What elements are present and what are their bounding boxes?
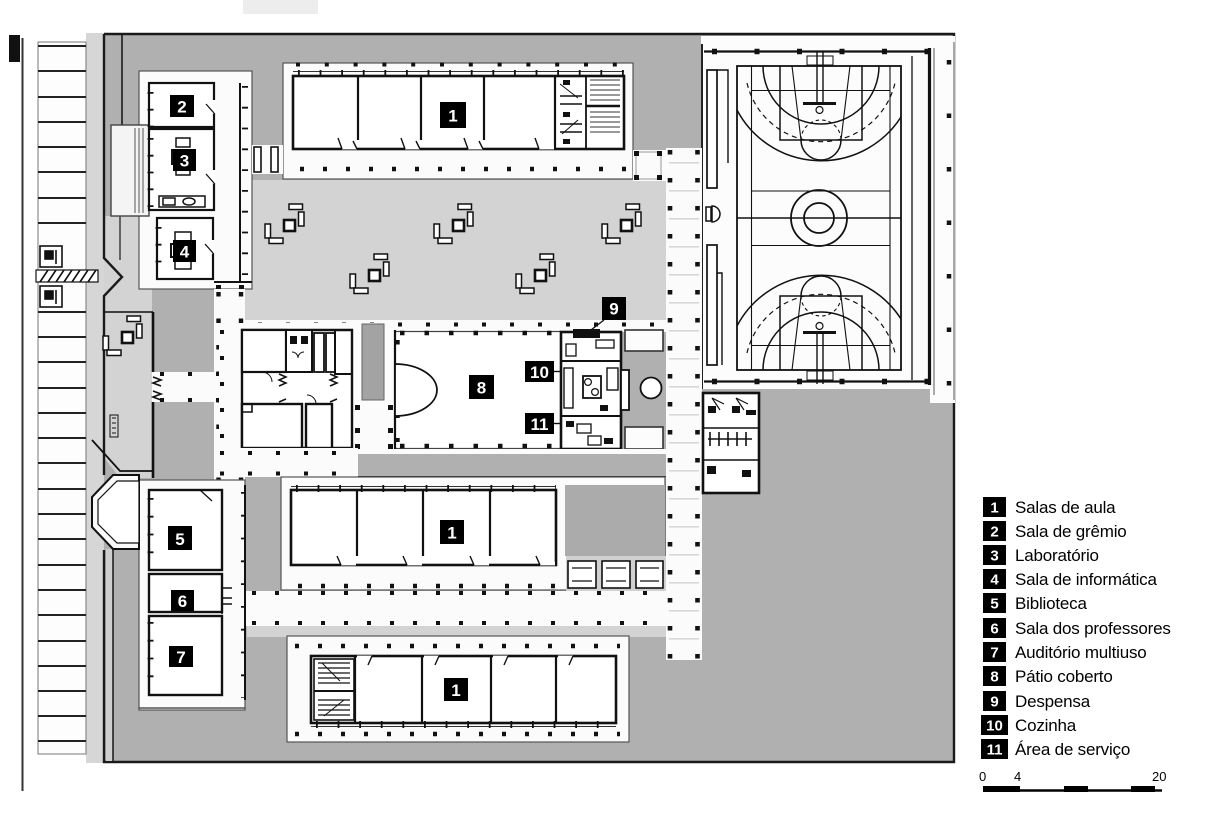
svg-text:4: 4: [180, 243, 190, 262]
svg-text:10: 10: [986, 718, 1003, 735]
svg-text:3: 3: [990, 548, 998, 565]
svg-text:1: 1: [448, 107, 457, 126]
svg-text:7: 7: [990, 645, 998, 662]
svg-text:Sala de informática: Sala de informática: [1015, 570, 1157, 589]
svg-text:3: 3: [180, 152, 189, 171]
svg-text:9: 9: [609, 300, 618, 319]
svg-text:6: 6: [990, 621, 998, 638]
svg-text:5: 5: [175, 530, 184, 549]
svg-text:2: 2: [177, 98, 186, 117]
svg-text:10: 10: [530, 363, 549, 382]
svg-text:20: 20: [1152, 769, 1166, 784]
svg-text:Biblioteca: Biblioteca: [1015, 594, 1087, 613]
svg-text:Sala de grêmio: Sala de grêmio: [1015, 522, 1127, 541]
svg-text:4: 4: [990, 572, 999, 589]
svg-text:Pátio coberto: Pátio coberto: [1015, 667, 1113, 686]
svg-text:5: 5: [990, 596, 998, 613]
svg-text:1: 1: [451, 681, 460, 700]
svg-text:9: 9: [990, 694, 998, 711]
svg-text:1: 1: [447, 524, 456, 543]
svg-text:8: 8: [990, 669, 998, 686]
svg-text:4: 4: [1014, 769, 1021, 784]
svg-text:Cozinha: Cozinha: [1015, 716, 1077, 735]
svg-text:Despensa: Despensa: [1015, 692, 1091, 711]
svg-text:Salas de aula: Salas de aula: [1015, 498, 1116, 517]
svg-text:Área de serviço: Área de serviço: [1015, 740, 1130, 759]
svg-text:0: 0: [979, 769, 986, 784]
svg-text:1: 1: [990, 500, 998, 517]
svg-text:11: 11: [987, 742, 1003, 759]
svg-text:8: 8: [477, 379, 486, 398]
svg-text:7: 7: [176, 648, 185, 667]
svg-text:Auditório multiuso: Auditório multiuso: [1015, 643, 1147, 662]
svg-text:2: 2: [990, 524, 998, 541]
svg-text:Laboratório: Laboratório: [1015, 546, 1099, 565]
svg-text:6: 6: [178, 592, 187, 611]
svg-text:11: 11: [531, 415, 549, 434]
svg-text:Sala dos professores: Sala dos professores: [1015, 619, 1171, 638]
